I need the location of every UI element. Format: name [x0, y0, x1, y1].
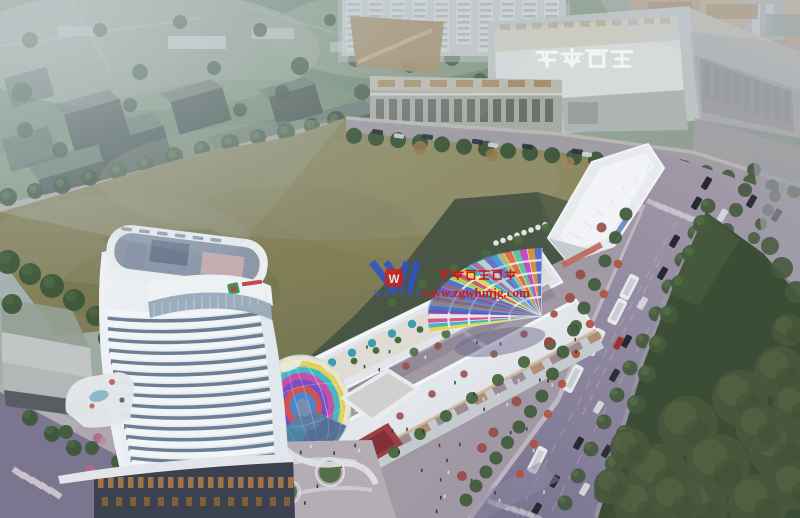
- svg-text:www.zgwhmjg.com: www.zgwhmjg.com: [422, 285, 530, 300]
- svg-text:WANHAO: WANHAO: [375, 289, 423, 298]
- svg-text:W: W: [389, 274, 400, 286]
